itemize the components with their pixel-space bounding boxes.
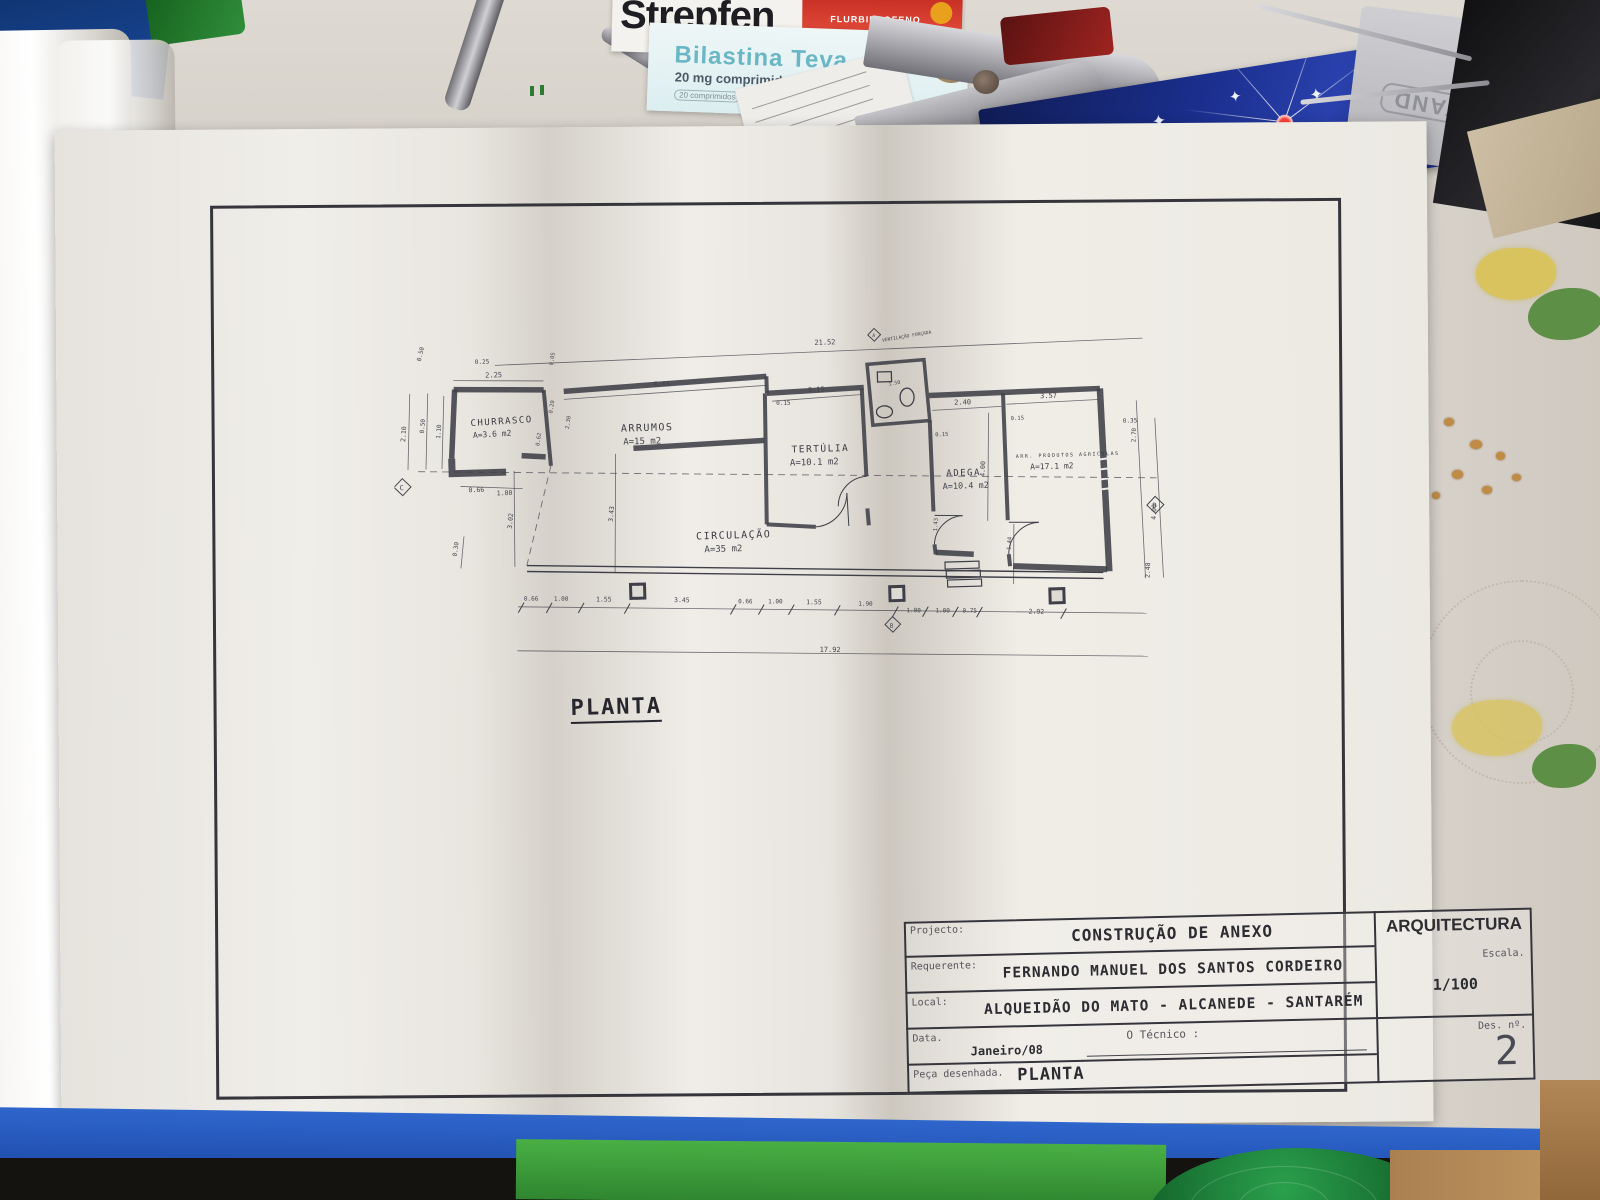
des-number: 2 bbox=[1494, 1028, 1519, 1075]
axis-marker-a: A bbox=[872, 333, 875, 339]
dim: 1.55 bbox=[806, 598, 822, 606]
dim: 0.20 bbox=[548, 400, 556, 414]
dim: 1.50 bbox=[888, 380, 901, 388]
local-label: Local: bbox=[911, 997, 947, 1009]
dim: 1.00 bbox=[768, 598, 783, 605]
dim: 0.50 bbox=[416, 346, 426, 362]
data-value: Janeiro/08 bbox=[971, 1043, 1044, 1059]
dim: 2.30 bbox=[565, 416, 573, 430]
blister-tick bbox=[540, 85, 544, 95]
drawing-sheet: CHURRASCO A=3.6 m2 ARRUMOS A=15 m2 TERTÚ… bbox=[55, 121, 1434, 1131]
green-strip bbox=[516, 1139, 1166, 1200]
dim: 1.00 bbox=[554, 596, 569, 603]
blister-tick bbox=[530, 86, 534, 96]
crumb bbox=[1496, 452, 1505, 460]
dim: 3.15 bbox=[808, 386, 825, 394]
dim: 0.30 bbox=[452, 541, 461, 557]
dim: 1.43 bbox=[933, 518, 940, 532]
crumb bbox=[1452, 470, 1463, 479]
dim: 1.00 bbox=[935, 607, 950, 614]
tecnico-label: O Técnico : bbox=[1126, 1027, 1199, 1042]
dim: 0.66 bbox=[468, 486, 484, 494]
dim: 1.00 bbox=[497, 489, 513, 497]
plan-caption: PLANTA bbox=[570, 694, 662, 724]
floor-plan: CHURRASCO A=3.6 m2 ARRUMOS A=15 m2 TERTÚ… bbox=[390, 319, 1190, 687]
room-area: A=10.1 m2 bbox=[790, 457, 839, 468]
local-value: ALQUEIDÃO DO MATO - ALCANEDE - SANTARÉM bbox=[976, 993, 1372, 1018]
pack-note: 20 comprimidos bbox=[674, 89, 741, 102]
requerente-value: FERNANDO MANUEL DOS SANTOS CORDEIRO bbox=[975, 957, 1371, 982]
dim: 1.55 bbox=[596, 595, 612, 603]
room-area: A=35 m2 bbox=[704, 544, 742, 555]
dim: 0.15 bbox=[776, 400, 791, 407]
title-block: Projecto: CONSTRUÇÃO DE ANEXO Requerente… bbox=[904, 908, 1536, 1094]
requerente-label: Requerente: bbox=[911, 960, 977, 972]
crumb bbox=[1470, 440, 1482, 449]
dim: 1.00 bbox=[906, 607, 921, 614]
dim: 2.48 bbox=[1144, 562, 1153, 578]
escala-cell: Escala. 1/100 bbox=[1374, 944, 1534, 1020]
dim: 0.50 bbox=[419, 418, 427, 433]
room-area: A=17.1 m2 bbox=[1030, 461, 1074, 471]
dim: 1.10 bbox=[435, 424, 443, 439]
peca-value: PLANTA bbox=[1017, 1064, 1085, 1086]
room-area: A=3.6 m2 bbox=[473, 429, 512, 440]
dim: 6.65 bbox=[653, 380, 670, 388]
dim: 0.15 bbox=[935, 432, 948, 438]
crumb bbox=[1512, 474, 1521, 481]
des-cell: Des. nº. 2 bbox=[1376, 1016, 1535, 1084]
photo-scene: Strepfen FLURBIPROFENO Bilastina Teva 20… bbox=[0, 0, 1600, 1200]
room-name: CHURRASCO bbox=[470, 415, 533, 429]
room-name: ADEGA bbox=[946, 468, 981, 479]
dim: 3.45 bbox=[674, 596, 690, 604]
projecto-label: Projecto: bbox=[910, 924, 964, 936]
dim: 0.05 bbox=[549, 352, 557, 366]
dim: 2.25 bbox=[485, 371, 502, 379]
discipline-value: ARQUITECTURA bbox=[1376, 914, 1532, 938]
wooden-table-edge bbox=[1540, 1080, 1600, 1200]
escala-value: 1/100 bbox=[1377, 974, 1533, 996]
dim: 3.02 bbox=[506, 513, 515, 529]
discipline-cell: ARQUITECTURA bbox=[1374, 908, 1533, 948]
dim: 0.75 bbox=[962, 608, 977, 615]
dim: 0.62 bbox=[535, 432, 543, 446]
dim: 0.66 bbox=[524, 596, 539, 603]
room-name: TERTÚLIA bbox=[791, 442, 849, 456]
dim-total: 17.92 bbox=[820, 646, 841, 654]
dim: 4.00 bbox=[978, 461, 987, 477]
crumb bbox=[1482, 486, 1492, 494]
dim: 2.70 bbox=[1130, 427, 1138, 442]
peca-label: Peça desenhada. bbox=[913, 1068, 1004, 1081]
axis-marker-b: B bbox=[890, 623, 894, 630]
dim: 1.90 bbox=[858, 601, 873, 608]
axis-marker-c: C bbox=[399, 484, 403, 492]
dim: 3.43 bbox=[607, 506, 616, 522]
escala-label: Escala. bbox=[1482, 948, 1524, 960]
projecto-value: CONSTRUÇÃO DE ANEXO bbox=[974, 919, 1370, 947]
dim: 0.35 bbox=[1123, 417, 1138, 424]
dim: 1.44 bbox=[1007, 536, 1014, 550]
dim: 2.10 bbox=[399, 426, 408, 442]
dim: 4.00 bbox=[1150, 504, 1159, 520]
room-area: A=10.4 m2 bbox=[943, 481, 989, 492]
crumb bbox=[1444, 418, 1454, 426]
dim: 3.57 bbox=[1040, 392, 1057, 400]
dim: 21.52 bbox=[814, 338, 835, 347]
dim: 2.92 bbox=[1029, 608, 1045, 616]
scissors-pivot bbox=[973, 70, 999, 94]
data-label: Data. bbox=[912, 1033, 942, 1045]
room-area: A=15 m2 bbox=[623, 436, 661, 447]
room-name: ARRUMOS bbox=[621, 422, 674, 435]
dim: 0.25 bbox=[475, 359, 490, 366]
room-name: CIRCULAÇÃO bbox=[696, 527, 772, 542]
dim: 0.66 bbox=[738, 598, 753, 605]
dim: 2.40 bbox=[954, 398, 971, 406]
crumb bbox=[1432, 492, 1440, 499]
dim: 0.15 bbox=[1011, 416, 1024, 422]
ventilation-note: VENTILAÇÃO FORÇADA bbox=[882, 329, 932, 344]
